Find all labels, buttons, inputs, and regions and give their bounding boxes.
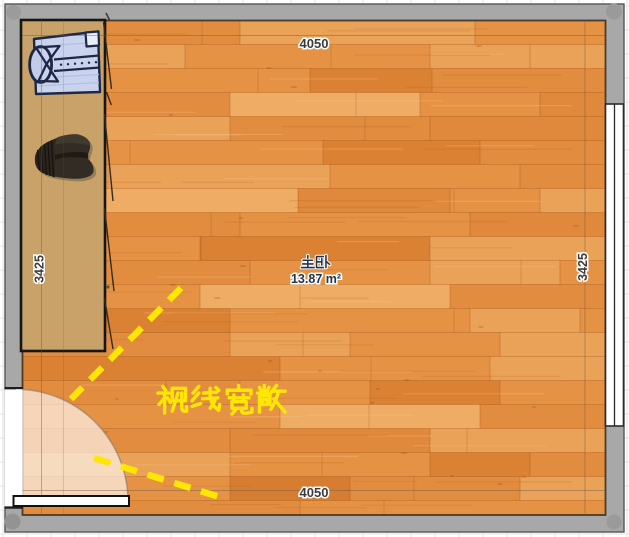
svg-text:4050: 4050 <box>300 36 329 51</box>
svg-text:13.87 m²: 13.87 m² <box>291 272 341 286</box>
svg-text:4050: 4050 <box>300 485 329 500</box>
svg-text:3425: 3425 <box>576 253 590 281</box>
svg-text:3425: 3425 <box>33 255 47 283</box>
